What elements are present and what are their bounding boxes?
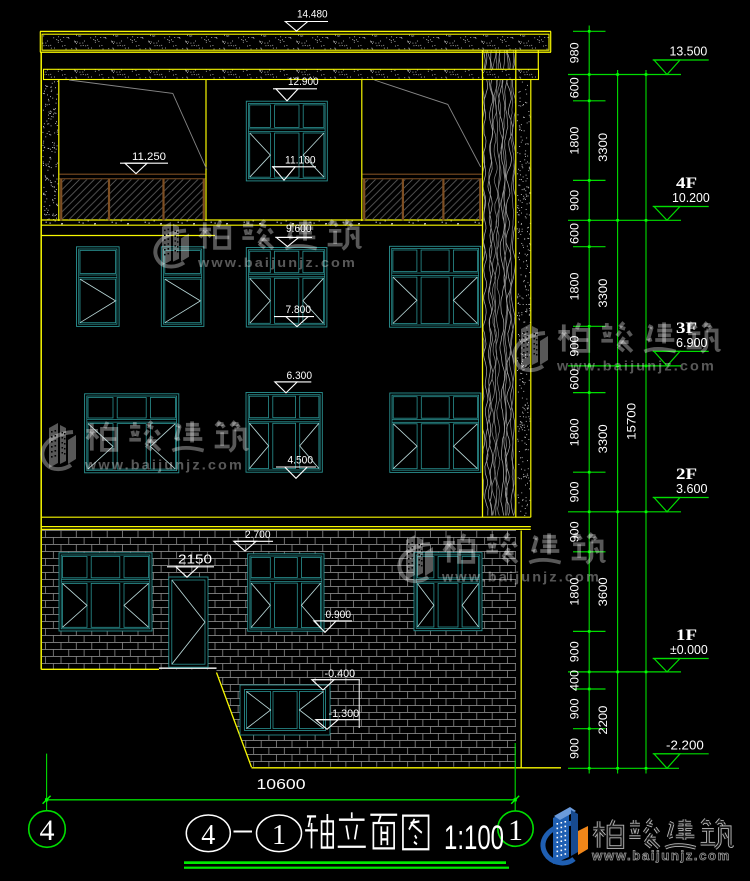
svg-text:-1.300: -1.300	[329, 708, 360, 720]
svg-text:-2.200: -2.200	[666, 738, 704, 752]
svg-text:600: 600	[567, 223, 581, 244]
svg-text:12.900: 12.900	[288, 76, 319, 88]
svg-text:14.480: 14.480	[297, 9, 328, 21]
svg-text:www.baijunjz.com: www.baijunjz.com	[441, 570, 601, 585]
svg-text:11.100: 11.100	[285, 155, 316, 167]
svg-text:4F: 4F	[676, 175, 697, 192]
svg-text:0.900: 0.900	[326, 609, 352, 621]
svg-text:15700: 15700	[625, 403, 639, 440]
svg-text:1800: 1800	[567, 272, 581, 300]
svg-text:3.600: 3.600	[676, 482, 708, 496]
svg-text:1800: 1800	[567, 418, 581, 446]
svg-text:1: 1	[272, 820, 286, 851]
svg-text:1F: 1F	[676, 627, 697, 644]
svg-text:3300: 3300	[596, 133, 610, 162]
svg-text:www.baijunjz.com: www.baijunjz.com	[556, 359, 716, 374]
svg-text:www.baijunjz.com: www.baijunjz.com	[197, 255, 357, 270]
svg-text:400: 400	[567, 670, 581, 691]
svg-text:11.250: 11.250	[132, 151, 166, 163]
svg-text:6.300: 6.300	[287, 370, 313, 382]
svg-text:13.500: 13.500	[670, 45, 708, 59]
svg-text:600: 600	[567, 77, 581, 98]
svg-text:3300: 3300	[596, 424, 610, 453]
svg-text:4: 4	[40, 814, 55, 847]
svg-text:±0.000: ±0.000	[670, 643, 708, 657]
svg-text:1: 1	[508, 814, 523, 847]
svg-text:2F: 2F	[676, 466, 697, 483]
svg-text:www.baijunjz.com: www.baijunjz.com	[84, 458, 244, 473]
svg-text:7.800: 7.800	[286, 304, 312, 316]
svg-text:-0.400: -0.400	[325, 668, 356, 680]
svg-text:900: 900	[567, 641, 581, 662]
svg-text:900: 900	[567, 190, 581, 211]
svg-text:1800: 1800	[567, 126, 581, 154]
svg-text:900: 900	[567, 738, 581, 759]
svg-text:10.200: 10.200	[672, 191, 710, 205]
svg-text:900: 900	[567, 481, 581, 502]
svg-text:10600: 10600	[257, 777, 306, 793]
svg-text:900: 900	[567, 698, 581, 719]
svg-text:4.500: 4.500	[288, 455, 314, 467]
svg-text:1:100: 1:100	[444, 819, 504, 857]
svg-text:4: 4	[201, 820, 215, 851]
svg-text:2150: 2150	[178, 553, 212, 567]
svg-text:www.baijunjz.com: www.baijunjz.com	[591, 848, 731, 863]
svg-text:2.700: 2.700	[245, 529, 271, 541]
svg-text:3300: 3300	[596, 278, 610, 307]
svg-text:980: 980	[567, 42, 581, 63]
svg-text:2200: 2200	[596, 705, 610, 734]
